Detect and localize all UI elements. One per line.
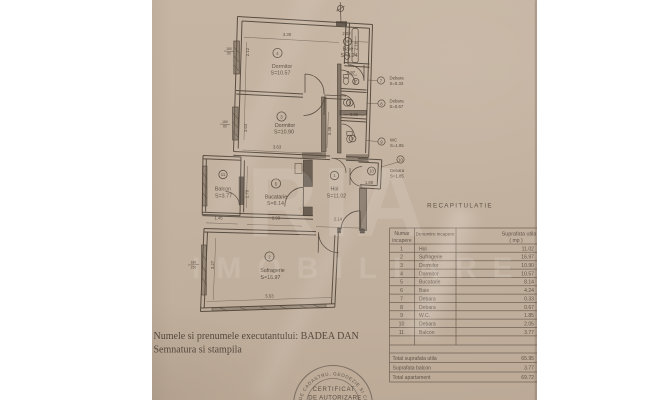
svg-text:0.89: 0.89 [350,112,359,117]
svg-text:180: 180 [222,120,228,124]
svg-text:3.77: 3.77 [524,330,534,336]
svg-text:8: 8 [380,101,383,106]
svg-text:CERTIFICAT: CERTIFICAT [313,387,356,393]
svg-text:2.19: 2.19 [354,41,359,50]
svg-text:Total apartament: Total apartament [393,375,432,381]
svg-text:S=0.33: S=0.33 [390,81,404,86]
svg-text:7: 7 [355,79,358,84]
svg-text:Total suprafata utila: Total suprafata utila [393,356,437,362]
svg-text:2.05: 2.05 [524,321,534,327]
svg-text:S=4.24: S=4.24 [341,53,358,59]
svg-text:4.24: 4.24 [524,288,534,294]
svg-text:180: 180 [226,47,232,51]
svg-text:S=0.67: S=0.67 [390,104,404,109]
svg-text:Semnatura si stampila: Semnatura si stampila [154,345,243,356]
svg-text:2.12: 2.12 [245,47,250,56]
svg-text:DE AUTORIZARE: DE AUTORIZARE [308,396,361,400]
svg-text:8: 8 [349,100,352,105]
svg-text:69.72: 69.72 [521,375,534,381]
svg-text:65.95: 65.95 [521,356,534,362]
svg-text:1.85: 1.85 [524,313,534,319]
svg-text:0.33: 0.33 [524,296,534,302]
svg-text:7: 7 [380,78,383,83]
svg-text:60: 60 [227,52,231,56]
svg-text:Suprafata balcon: Suprafata balcon [393,366,432,372]
svg-text:( mp ): ( mp ) [509,238,523,244]
svg-text:3.77: 3.77 [524,366,534,372]
svg-text:7: 7 [400,296,403,302]
svg-text:S=10.90: S=10.90 [274,130,294,136]
svg-text:8: 8 [400,305,403,311]
svg-text:WC: WC [390,138,397,143]
svg-text:60: 60 [223,125,227,129]
svg-text:9: 9 [351,136,354,141]
svg-text:0.97: 0.97 [347,70,356,75]
svg-text:Debara: Debara [390,99,405,104]
svg-text:2.02: 2.02 [342,31,351,36]
svg-text:0.67: 0.67 [524,305,534,311]
svg-text:5.53: 5.53 [265,294,274,299]
svg-text:Debara: Debara [390,76,405,81]
svg-text:Suprafata utila: Suprafata utila [502,232,537,238]
svg-text:Baie: Baie [343,47,354,53]
svg-text:3.38: 3.38 [327,126,332,135]
svg-text:6: 6 [400,288,403,294]
svg-text:Numele si prenumele executantu: Numele si prenumele executantului: BADEA… [154,331,359,342]
svg-text:9: 9 [380,139,383,144]
